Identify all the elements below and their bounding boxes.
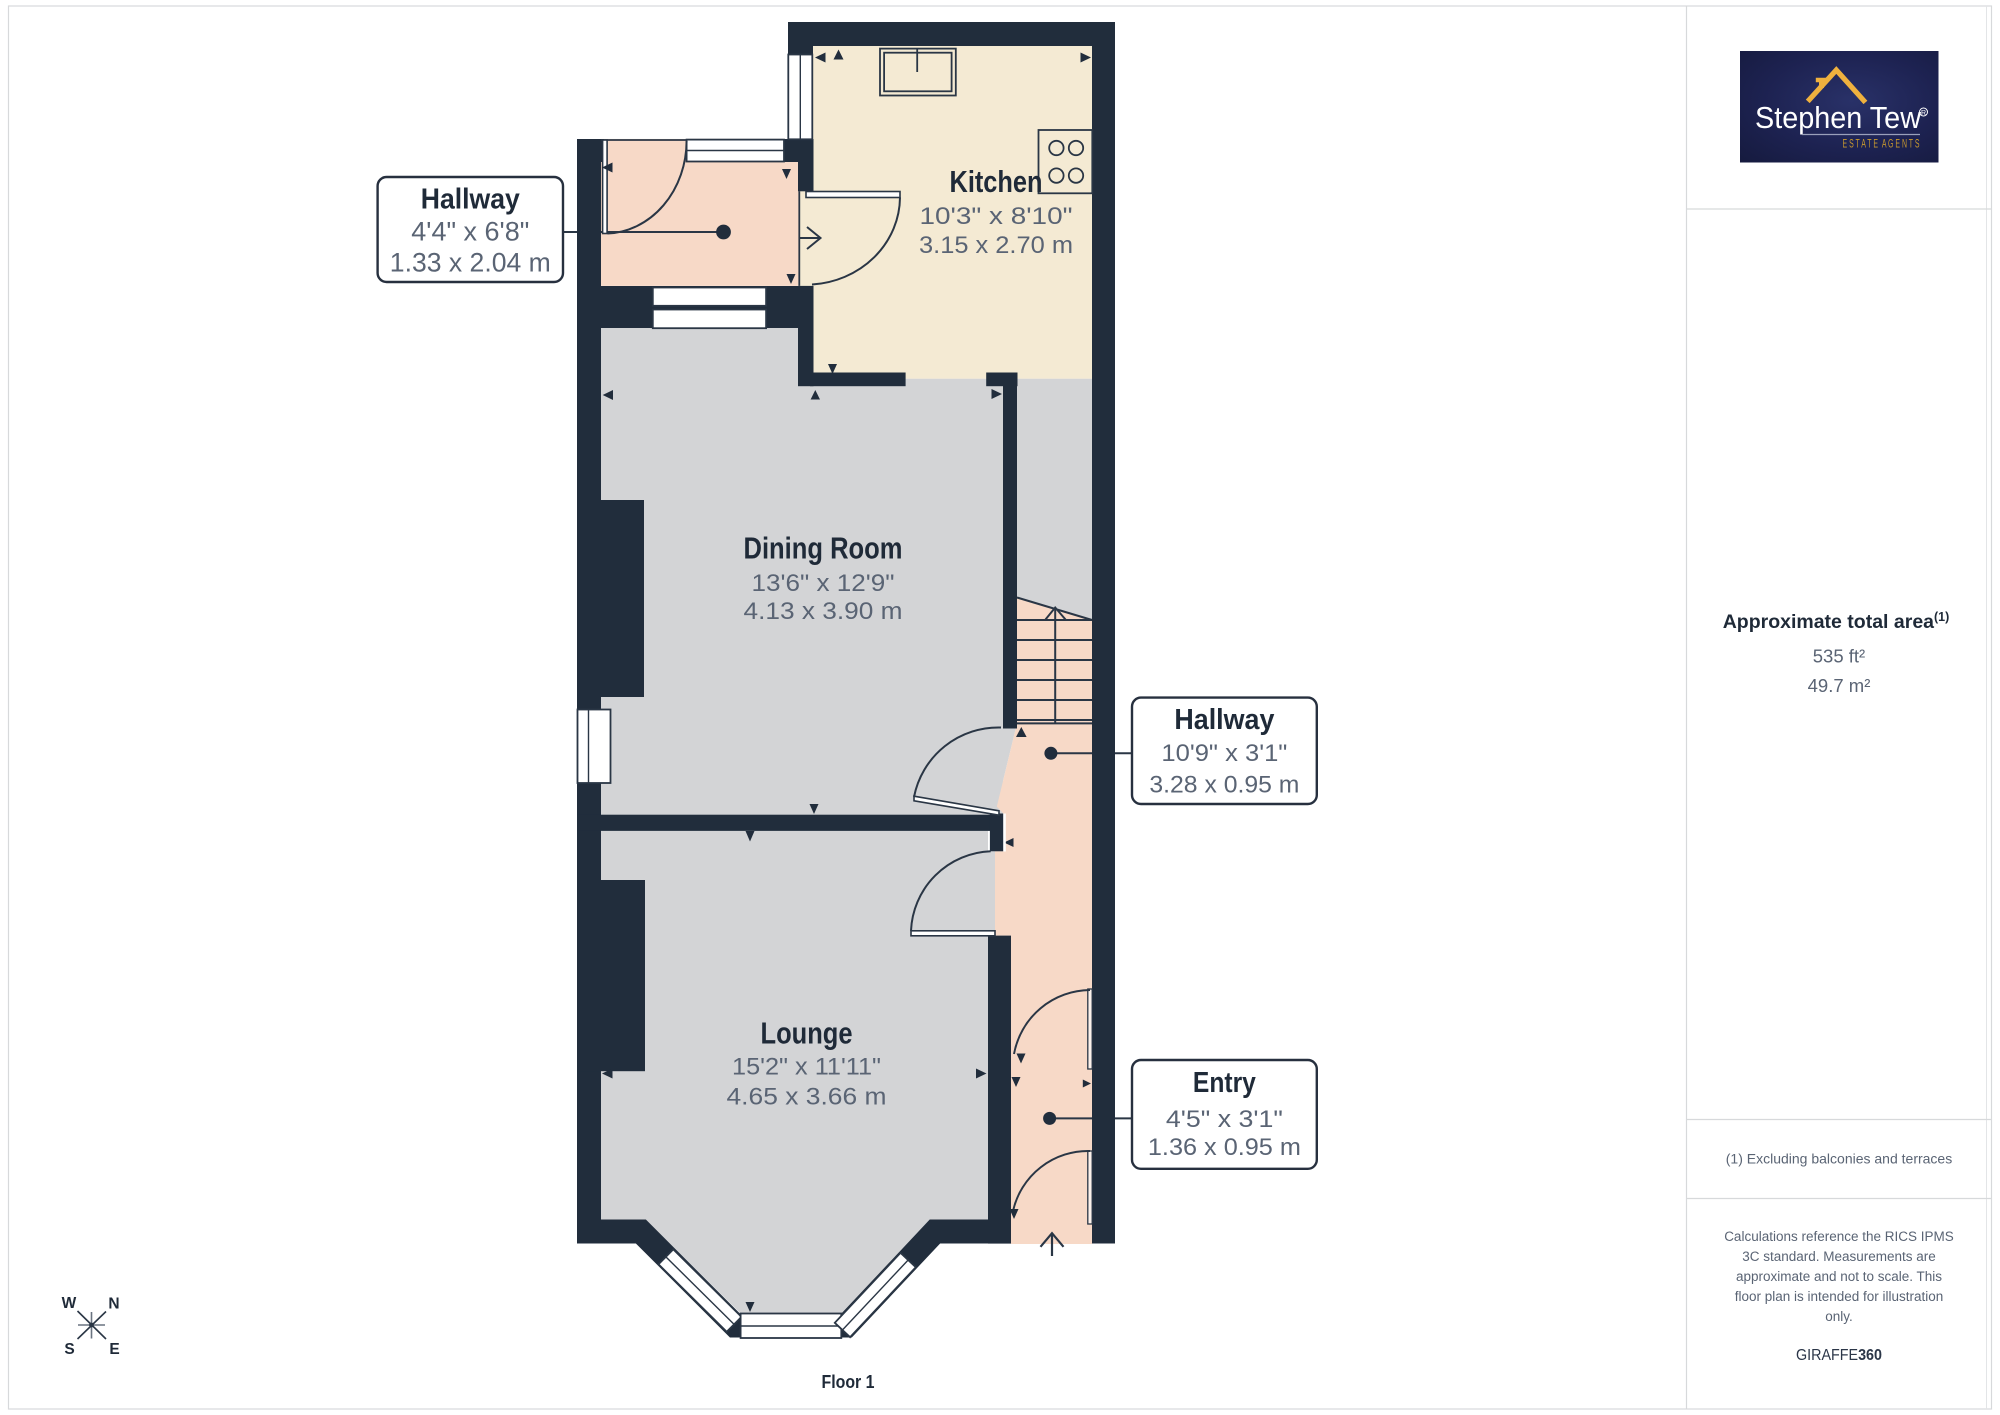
svg-text:Kitchen: Kitchen: [950, 164, 1043, 199]
svg-text:13'6" x 12'9": 13'6" x 12'9": [752, 570, 895, 597]
svg-text:Hallway: Hallway: [421, 184, 520, 216]
svg-text:GIRAFFE360: GIRAFFE360: [1796, 1347, 1882, 1364]
svg-text:Stephen Tew: Stephen Tew: [1755, 101, 1922, 135]
svg-text:3C standard. Measurements are: 3C standard. Measurements are: [1742, 1249, 1936, 1264]
svg-text:4.65 x 3.66 m: 4.65 x 3.66 m: [727, 1084, 887, 1111]
svg-text:Hallway: Hallway: [1174, 704, 1274, 736]
svg-text:Lounge: Lounge: [761, 1016, 853, 1051]
svg-text:approximate and not to scale.: approximate and not to scale. This: [1736, 1269, 1942, 1284]
svg-text:4.13 x 3.90 m: 4.13 x 3.90 m: [744, 598, 903, 625]
svg-text:Approximate total area(1): Approximate total area(1): [1723, 610, 1950, 633]
svg-text:Calculations reference the RIC: Calculations reference the RICS IPMS: [1724, 1229, 1954, 1244]
svg-text:15'2" x 11'11": 15'2" x 11'11": [732, 1054, 881, 1081]
svg-text:4'4" x 6'8": 4'4" x 6'8": [411, 217, 529, 247]
svg-text:1.33 x 2.04 m: 1.33 x 2.04 m: [390, 248, 551, 278]
svg-text:535 ft²: 535 ft²: [1813, 646, 1865, 667]
svg-text:E: E: [109, 1341, 119, 1358]
svg-text:Dining Room: Dining Room: [744, 531, 903, 566]
svg-text:10'3" x 8'10": 10'3" x 8'10": [920, 203, 1073, 230]
svg-text:N: N: [108, 1296, 119, 1313]
svg-text:3.15 x 2.70 m: 3.15 x 2.70 m: [919, 232, 1073, 259]
svg-text:4'5" x 3'1": 4'5" x 3'1": [1166, 1106, 1283, 1133]
svg-text:Floor 1: Floor 1: [822, 1371, 875, 1392]
svg-text:1.36 x 0.95 m: 1.36 x 0.95 m: [1148, 1134, 1301, 1161]
svg-text:3.28 x 0.95 m: 3.28 x 0.95 m: [1149, 772, 1299, 799]
svg-text:E S T A T E A G E N T S: E S T A T E A G E N T S: [1843, 139, 1920, 151]
svg-text:floor plan is intended for ill: floor plan is intended for illustration: [1735, 1289, 1944, 1304]
svg-text:S: S: [64, 1341, 74, 1358]
svg-text:10'9" x 3'1": 10'9" x 3'1": [1161, 740, 1287, 767]
svg-text:49.7 m²: 49.7 m²: [1808, 675, 1871, 696]
svg-text:(1) Excluding balconies and te: (1) Excluding balconies and terraces: [1726, 1151, 1952, 1167]
svg-text:only.: only.: [1825, 1309, 1853, 1324]
svg-text:Entry: Entry: [1193, 1067, 1256, 1099]
svg-text:W: W: [62, 1295, 77, 1312]
svg-text:R: R: [1921, 110, 1926, 117]
